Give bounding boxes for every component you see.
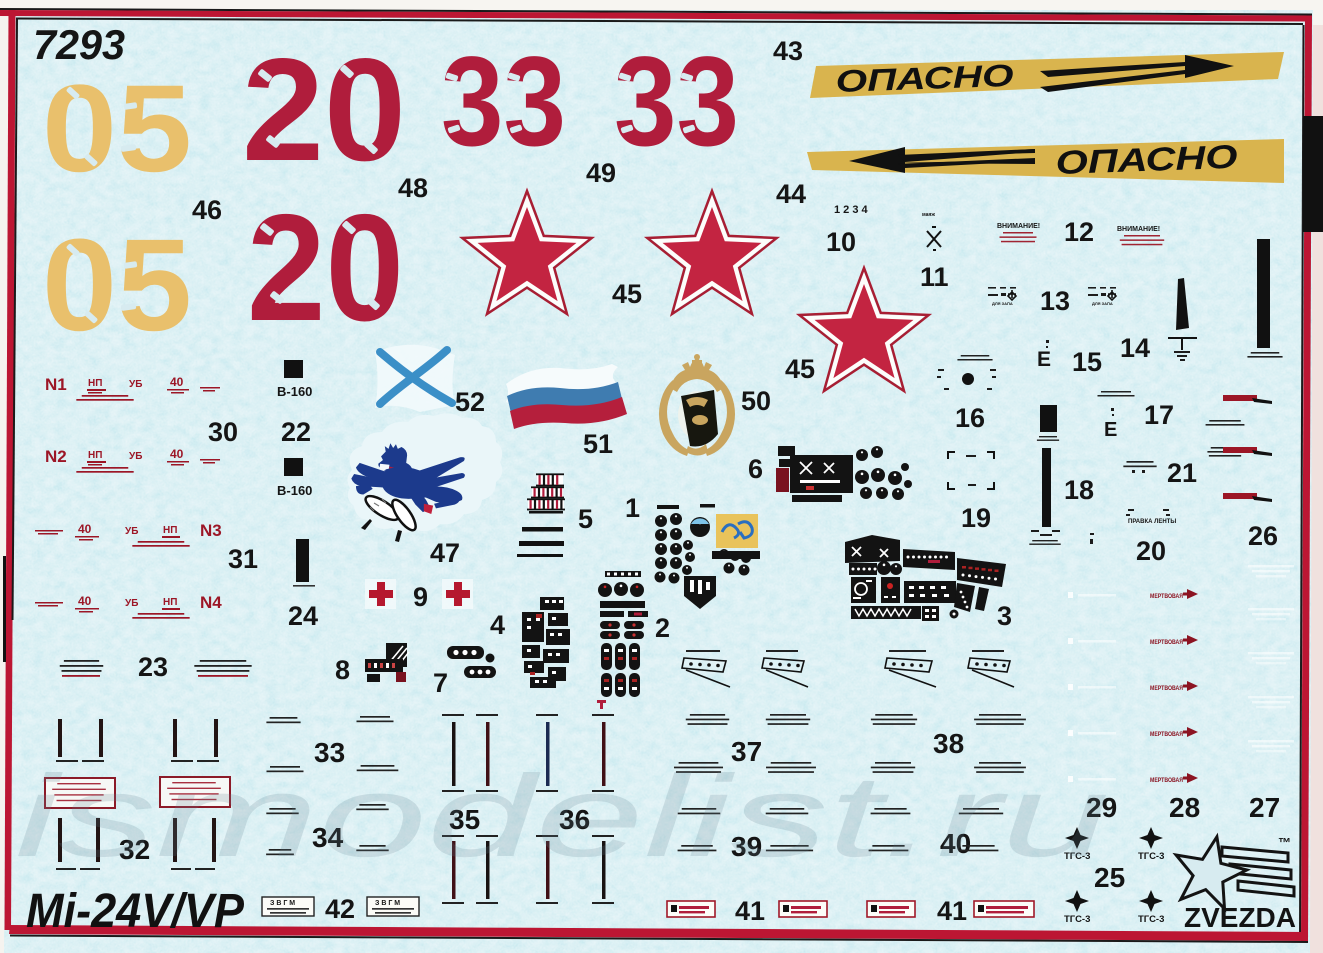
svg-text:11: 11 — [920, 262, 949, 292]
svg-text:45: 45 — [612, 279, 642, 309]
svg-text:20: 20 — [1136, 536, 1166, 566]
svg-text:З В Г М: З В Г М — [270, 900, 295, 907]
svg-text:4: 4 — [490, 610, 505, 640]
svg-text:51: 51 — [583, 429, 613, 459]
svg-text:З В Г М: З В Г М — [375, 900, 400, 907]
svg-text:N4: N4 — [200, 593, 222, 612]
svg-text:ТГС-3: ТГС-3 — [1064, 914, 1090, 925]
svg-text:5: 5 — [578, 504, 593, 534]
svg-text:НП: НП — [88, 450, 102, 461]
svg-text:40: 40 — [170, 447, 184, 461]
svg-text:ОПАСНО: ОПАСНО — [1055, 138, 1239, 181]
svg-text:40: 40 — [78, 522, 92, 536]
svg-text:40: 40 — [78, 594, 92, 608]
svg-text:В-160: В-160 — [277, 483, 312, 498]
svg-text:41: 41 — [735, 896, 765, 926]
svg-text:МЕРТВОВАЯ: МЕРТВОВАЯ — [1150, 639, 1183, 646]
svg-text:НП: НП — [163, 525, 177, 536]
svg-text:48: 48 — [398, 173, 428, 203]
svg-text:27: 27 — [1249, 792, 1280, 823]
svg-text:НП: НП — [163, 597, 177, 608]
svg-text:8: 8 — [335, 655, 350, 685]
svg-text:18: 18 — [1064, 475, 1094, 505]
svg-text:33: 33 — [441, 30, 566, 172]
svg-text:УБ: УБ — [129, 451, 142, 462]
svg-text:16: 16 — [955, 403, 985, 433]
svg-text:45: 45 — [785, 354, 815, 384]
svg-text:43: 43 — [773, 36, 803, 66]
svg-text:N3: N3 — [200, 521, 222, 540]
svg-text:05: 05 — [42, 60, 192, 198]
svg-text:40: 40 — [170, 375, 184, 389]
svg-text:15: 15 — [1072, 347, 1102, 377]
svg-text:10: 10 — [826, 227, 856, 257]
svg-text:N1: N1 — [45, 375, 67, 394]
svg-text:ДЛЯ ЗАПА: ДЛЯ ЗАПА — [1092, 301, 1113, 306]
svg-text:МЕРТВОВАЯ: МЕРТВОВАЯ — [1150, 593, 1183, 600]
svg-text:50: 50 — [741, 386, 771, 416]
svg-text:2: 2 — [655, 613, 670, 643]
svg-text:™: ™ — [1278, 835, 1291, 850]
svg-text:20: 20 — [247, 183, 404, 353]
svg-text:ПРАВКА ЛЕНТЫ: ПРАВКА ЛЕНТЫ — [1128, 519, 1176, 525]
svg-text:ВНИМАНИЕ!: ВНИМАНИЕ! — [997, 223, 1040, 230]
svg-text:МЕРТВОВАЯ: МЕРТВОВАЯ — [1150, 777, 1183, 784]
svg-text:30: 30 — [208, 417, 238, 447]
svg-text:9: 9 — [413, 582, 428, 612]
svg-text:46: 46 — [192, 195, 222, 225]
svg-text:E: E — [1037, 348, 1051, 371]
svg-text:19: 19 — [961, 503, 991, 533]
svg-text:17: 17 — [1144, 400, 1174, 430]
svg-text:В-160: В-160 — [277, 384, 312, 399]
svg-text:52: 52 — [455, 387, 485, 417]
svg-text:20: 20 — [242, 28, 406, 191]
svg-text:ТГС-3: ТГС-3 — [1138, 914, 1164, 925]
svg-text:3: 3 — [997, 601, 1012, 631]
svg-text:6: 6 — [748, 454, 763, 484]
svg-text:33: 33 — [614, 30, 739, 172]
svg-text:24: 24 — [288, 601, 318, 631]
svg-text:7: 7 — [433, 668, 448, 698]
svg-text:НП: НП — [88, 378, 102, 389]
svg-text:1 2 3 4: 1 2 3 4 — [834, 204, 869, 216]
svg-text:ZVEZDA: ZVEZDA — [1184, 902, 1296, 933]
svg-text:E: E — [1104, 419, 1117, 441]
svg-text:Mi-24V/VP: Mi-24V/VP — [26, 885, 245, 938]
svg-text:21: 21 — [1167, 458, 1197, 488]
svg-text:УБ: УБ — [125, 526, 138, 537]
svg-text:22: 22 — [281, 417, 311, 447]
svg-text:12: 12 — [1064, 217, 1094, 247]
svg-text:МЕРТВОВАЯ: МЕРТВОВАЯ — [1150, 685, 1183, 692]
svg-text:42: 42 — [325, 894, 355, 924]
svg-text:13: 13 — [1040, 286, 1070, 316]
svg-text:ВНИМАНИЕ!: ВНИМАНИЕ! — [1117, 226, 1160, 233]
svg-text:31: 31 — [228, 544, 258, 574]
svg-text:УБ: УБ — [125, 598, 138, 609]
svg-text:23: 23 — [138, 652, 168, 682]
svg-text:14: 14 — [1120, 333, 1150, 363]
svg-text:28: 28 — [1169, 792, 1200, 823]
svg-text:05: 05 — [42, 211, 192, 358]
svg-text:44: 44 — [776, 179, 806, 209]
svg-text:41: 41 — [937, 896, 967, 926]
svg-text:маяж: маяж — [922, 212, 935, 218]
svg-text:N2: N2 — [45, 447, 67, 466]
svg-text:ismodelist.ru: ismodelist.ru — [15, 751, 1110, 881]
svg-text:1: 1 — [625, 493, 640, 523]
svg-text:ОПАСНО: ОПАСНО — [835, 58, 1014, 99]
svg-text:МЕРТВОВАЯ: МЕРТВОВАЯ — [1150, 731, 1183, 738]
svg-text:УБ: УБ — [129, 379, 142, 390]
svg-text:26: 26 — [1248, 521, 1278, 551]
svg-text:ДЛЯ ЗАПА: ДЛЯ ЗАПА — [992, 301, 1013, 306]
svg-text:ТГС-3: ТГС-3 — [1138, 851, 1164, 862]
svg-text:47: 47 — [430, 538, 460, 568]
svg-text:49: 49 — [586, 158, 616, 188]
